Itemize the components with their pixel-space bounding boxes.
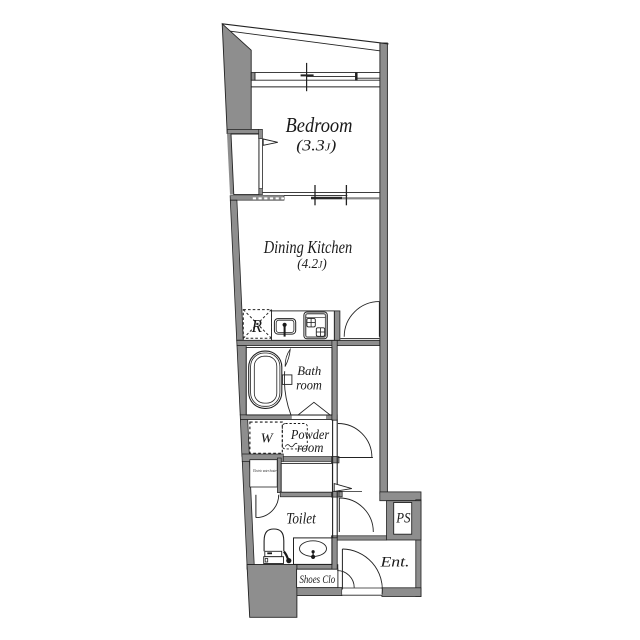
svg-text:PS: PS — [395, 510, 410, 526]
svg-text:Electric water heater: Electric water heater — [253, 468, 277, 473]
svg-text:Bedroom: Bedroom — [286, 113, 353, 137]
svg-text:(3.3J): (3.3J) — [296, 138, 336, 155]
svg-text:Ent.: Ent. — [379, 555, 409, 571]
svg-text:(4.2J): (4.2J) — [297, 256, 327, 271]
svg-text:room: room — [297, 441, 324, 456]
svg-text:W: W — [261, 430, 275, 445]
svg-text:R: R — [251, 316, 262, 336]
svg-text:room: room — [296, 379, 322, 394]
svg-text:Toilet: Toilet — [286, 510, 316, 527]
svg-text:Shoes Clo: Shoes Clo — [299, 574, 335, 586]
svg-text:Dining Kitchen: Dining Kitchen — [263, 237, 352, 257]
svg-text:Bath: Bath — [297, 363, 321, 378]
